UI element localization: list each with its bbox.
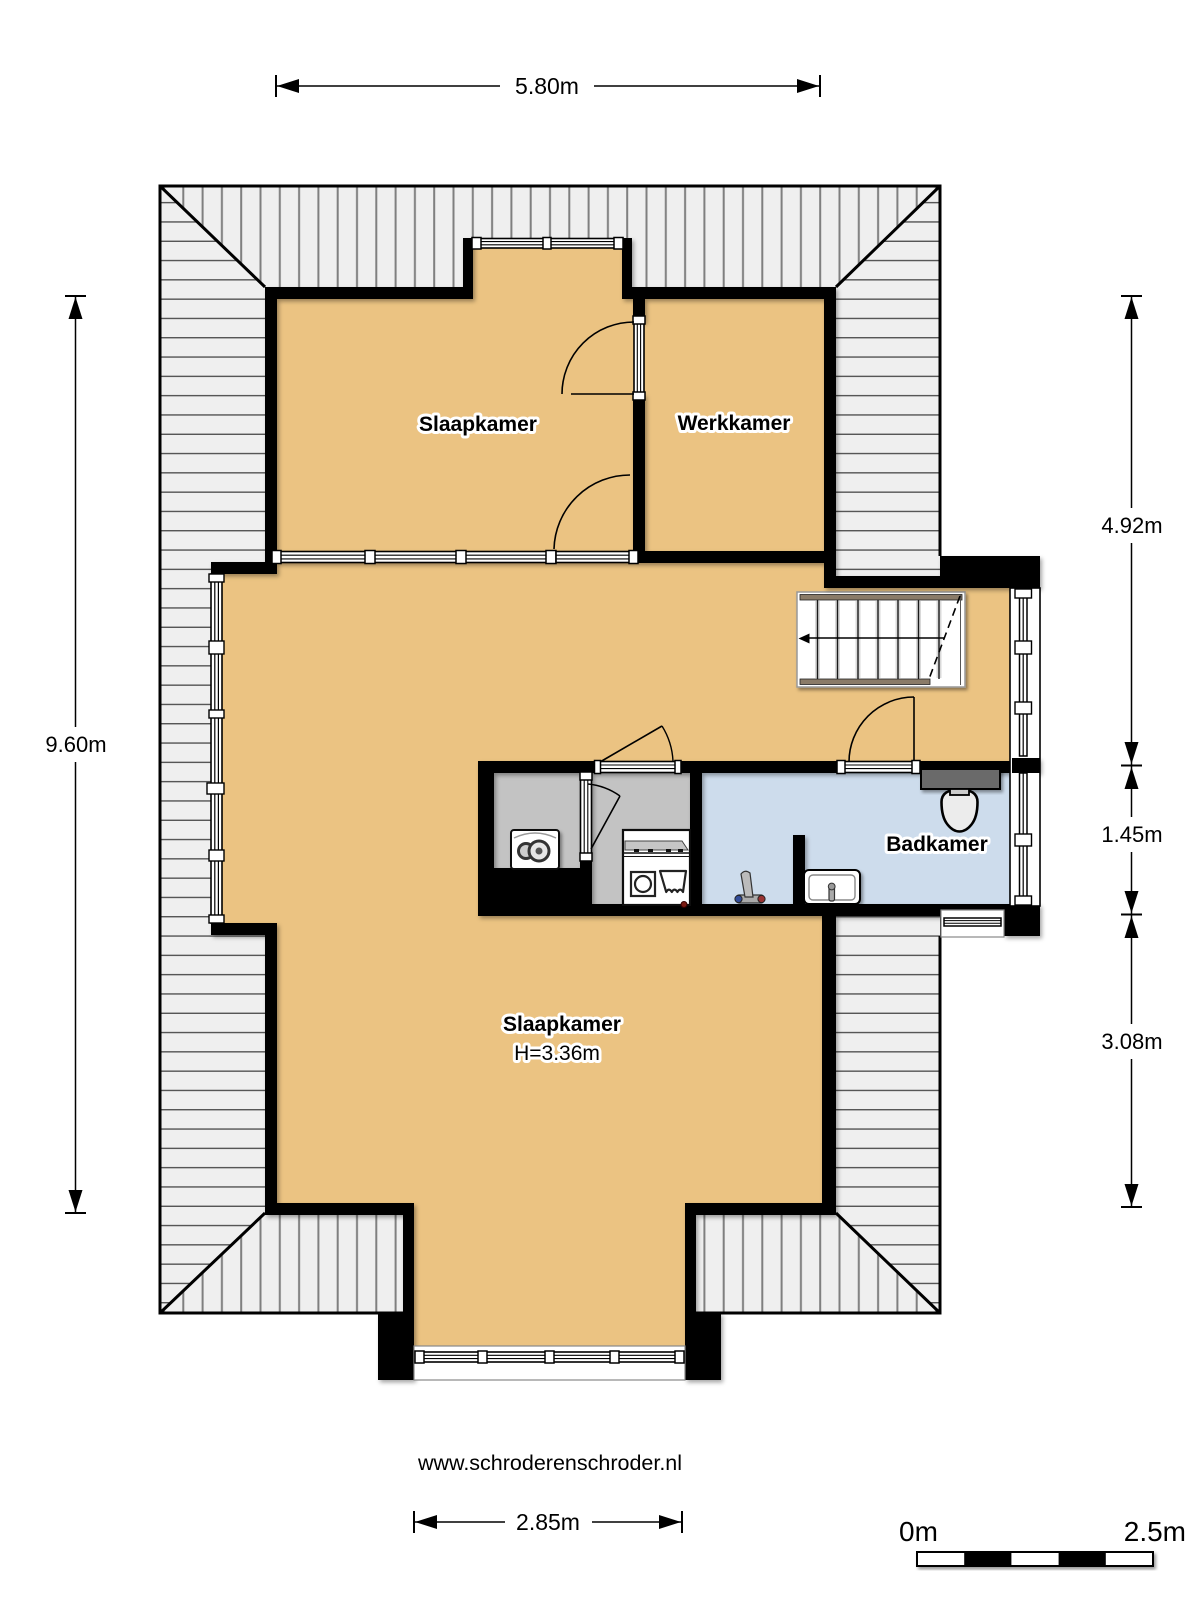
- svg-text:9.60m: 9.60m: [45, 732, 106, 757]
- svg-text:H=3.36m: H=3.36m: [514, 1042, 600, 1065]
- svg-text:Werkkamer: Werkkamer: [678, 412, 791, 435]
- svg-text:Badkamer: Badkamer: [886, 833, 988, 856]
- svg-text:www.schroderenschroder.nl: www.schroderenschroder.nl: [417, 1451, 682, 1475]
- svg-text:3.08m: 3.08m: [1101, 1029, 1162, 1054]
- svg-text:Slaapkamer: Slaapkamer: [503, 1013, 621, 1036]
- svg-text:1.45m: 1.45m: [1101, 822, 1162, 847]
- svg-text:4.92m: 4.92m: [1101, 513, 1162, 538]
- svg-text:Slaapkamer: Slaapkamer: [419, 413, 537, 436]
- svg-text:2.85m: 2.85m: [516, 1509, 580, 1535]
- svg-text:0m: 0m: [899, 1516, 938, 1547]
- svg-text:2.5m: 2.5m: [1124, 1516, 1186, 1547]
- svg-text:5.80m: 5.80m: [515, 73, 579, 99]
